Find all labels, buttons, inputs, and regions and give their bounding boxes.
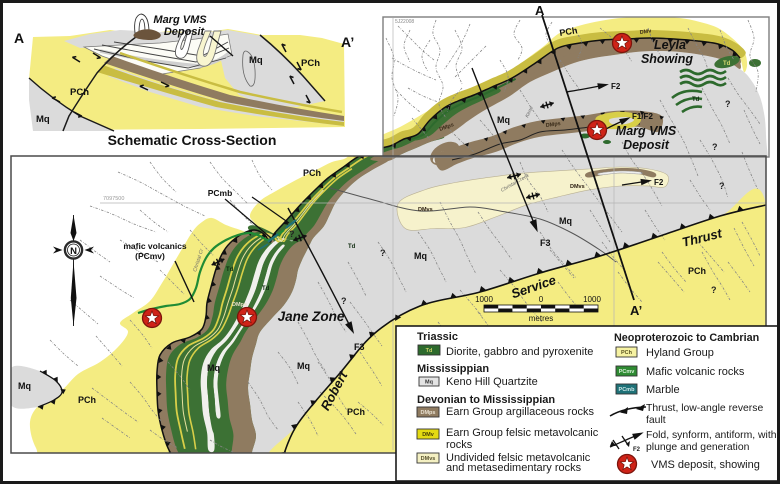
svg-text:7097500: 7097500 (103, 196, 124, 202)
svg-text:PCmb: PCmb (619, 387, 636, 393)
svg-text:Schematic Cross-Section: Schematic Cross-Section (108, 132, 277, 148)
svg-text:1000: 1000 (475, 295, 493, 304)
svg-text:Triassic: Triassic (417, 331, 458, 343)
svg-text:rocks: rocks (446, 439, 473, 451)
svg-text:Mq: Mq (425, 380, 433, 386)
svg-text:5J22008: 5J22008 (395, 19, 414, 25)
svg-text:Td: Td (226, 267, 234, 273)
svg-text:and metasedimentary rocks: and metasedimentary rocks (446, 462, 582, 474)
svg-text:Fold, synform, antiform, with: Fold, synform, antiform, with (646, 430, 777, 441)
svg-text:Deposit: Deposit (623, 138, 670, 152)
svg-text:PCmb: PCmb (208, 188, 233, 198)
svg-text:Jane Zone: Jane Zone (278, 309, 345, 324)
svg-text:Mq: Mq (207, 363, 220, 373)
svg-text:fault: fault (646, 415, 666, 426)
svg-text:?: ? (289, 229, 295, 239)
svg-text:?: ? (380, 248, 386, 258)
svg-text:1000: 1000 (583, 295, 601, 304)
svg-text:F2: F2 (633, 447, 641, 453)
svg-text:PCmv: PCmv (619, 369, 636, 375)
svg-text:Td: Td (348, 244, 356, 250)
svg-text:Mafic volcanic rocks: Mafic volcanic rocks (646, 366, 745, 378)
svg-text:mafic volcanics: mafic volcanics (123, 241, 187, 251)
svg-text:Thrust, low-angle reverse: Thrust, low-angle reverse (646, 403, 763, 414)
svg-text:PCh: PCh (688, 266, 706, 276)
svg-text:A’: A’ (341, 34, 354, 50)
svg-text:VMS deposit, showing: VMS deposit, showing (651, 459, 760, 471)
svg-text:?: ? (719, 181, 725, 191)
svg-text:Mq: Mq (297, 361, 310, 371)
svg-text:?: ? (712, 142, 718, 152)
svg-text:metres: metres (529, 314, 553, 323)
svg-text:DMvs: DMvs (570, 184, 585, 190)
svg-text:F3: F3 (354, 342, 365, 352)
svg-text:Mississippian: Mississippian (417, 363, 489, 375)
svg-text:Mq: Mq (559, 216, 572, 226)
svg-text:?: ? (711, 285, 717, 295)
svg-text:DMps: DMps (232, 302, 247, 308)
svg-text:?: ? (725, 99, 731, 109)
svg-text:F2: F2 (611, 82, 621, 91)
svg-text:PCh: PCh (301, 58, 320, 69)
svg-text:F3: F3 (540, 238, 551, 248)
svg-text:PCh: PCh (78, 395, 96, 405)
svg-text:Marg VMS: Marg VMS (153, 14, 207, 26)
svg-text:DMvs: DMvs (421, 456, 436, 462)
svg-text:Td: Td (262, 286, 270, 292)
svg-text:Td: Td (426, 348, 433, 354)
svg-text:Mq: Mq (36, 114, 50, 125)
svg-text:PCh: PCh (621, 350, 633, 356)
svg-text:Mq: Mq (414, 251, 427, 261)
svg-text:N: N (70, 246, 77, 257)
svg-text:Neoproterozoic to Cambrian: Neoproterozoic to Cambrian (614, 332, 759, 344)
svg-text:Td: Td (723, 61, 731, 67)
svg-text:A: A (14, 30, 24, 46)
svg-text:F1/F2: F1/F2 (632, 112, 653, 121)
svg-text:(PCmv): (PCmv) (135, 251, 165, 261)
svg-text:Mq: Mq (497, 115, 510, 125)
svg-text:PCh: PCh (347, 407, 365, 417)
svg-text:Earn Group felsic metavolcanic: Earn Group felsic metavolcanic (446, 427, 599, 439)
svg-text:PCh: PCh (303, 168, 321, 178)
svg-text:?: ? (341, 296, 347, 306)
svg-text:Leyla: Leyla (654, 38, 686, 52)
svg-text:F2: F2 (654, 178, 664, 187)
svg-text:0: 0 (539, 295, 544, 304)
svg-text:Keno Hill Quartzite: Keno Hill Quartzite (446, 376, 538, 388)
svg-text:plunge and generation: plunge and generation (646, 442, 750, 453)
svg-text:Deposit: Deposit (164, 26, 206, 38)
svg-text:Showing: Showing (641, 52, 693, 66)
svg-text:DMvs: DMvs (418, 207, 433, 213)
svg-text:Devonian to Mississippian: Devonian to Mississippian (417, 394, 555, 406)
svg-text:Diorite, gabbro and pyroxenite: Diorite, gabbro and pyroxenite (446, 346, 593, 358)
svg-text:A: A (535, 3, 545, 18)
svg-text:Mq: Mq (18, 381, 31, 391)
svg-text:PCh: PCh (70, 87, 89, 98)
svg-text:Td: Td (692, 97, 700, 103)
svg-text:DMv: DMv (422, 432, 435, 438)
svg-text:Hyland Group: Hyland Group (646, 347, 714, 359)
svg-text:Earn Group argillaceous rocks: Earn Group argillaceous rocks (446, 406, 594, 418)
svg-text:Marble: Marble (646, 384, 680, 396)
svg-text:DMps: DMps (421, 410, 436, 416)
svg-text:Marg VMS: Marg VMS (616, 124, 677, 138)
svg-text:Mq: Mq (249, 55, 263, 66)
svg-text:A’: A’ (630, 303, 642, 318)
